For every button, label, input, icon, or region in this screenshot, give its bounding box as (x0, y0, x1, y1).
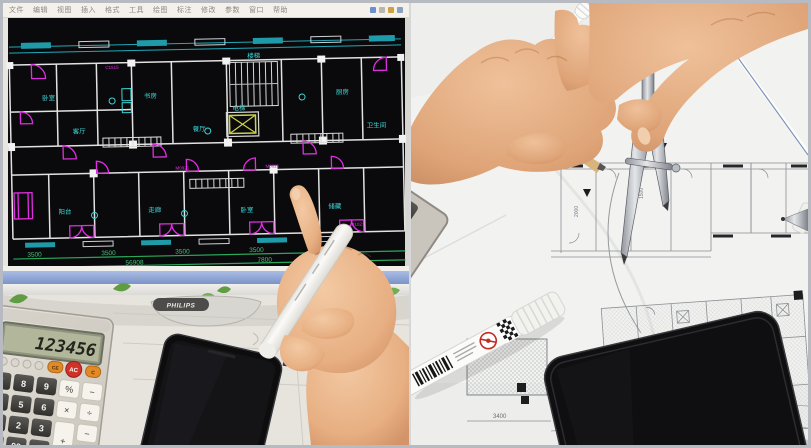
compass-adjust-knob[interactable] (672, 164, 680, 172)
fingernail (292, 188, 301, 200)
menu-item[interactable]: 帮助 (273, 5, 288, 15)
tool-icon[interactable] (379, 7, 385, 13)
menu-item[interactable]: 视图 (57, 5, 72, 15)
dim-label: 3500 (175, 248, 190, 255)
room-label: 书房 (144, 91, 157, 100)
menu-item[interactable]: 工具 (129, 5, 144, 15)
tool-icon[interactable] (370, 7, 376, 13)
room-label: 卧室 (240, 205, 254, 214)
room-label: 储藏 (328, 201, 342, 210)
menu-item[interactable]: 参数 (225, 5, 240, 15)
room-label: 餐厅 (193, 124, 207, 133)
menu-item[interactable]: 窗口 (249, 5, 264, 15)
room-label: 走廊 (148, 205, 162, 214)
room-label: 阳台 (58, 207, 71, 216)
cad-toolbar: 文件 编辑 视图 插入 格式 工具 绘图 标注 修改 参数 窗口 帮助 (3, 3, 409, 18)
door-code: M1021 (351, 222, 365, 227)
room-label: 电梯 (232, 103, 246, 112)
menu-item[interactable]: 绘图 (153, 5, 168, 15)
menu-item[interactable]: 标注 (177, 5, 192, 15)
svg-text:+: + (60, 436, 66, 445)
room-label: 卫生间 (367, 120, 387, 129)
tool-icon[interactable] (397, 7, 403, 13)
svg-text:00: 00 (10, 441, 21, 445)
dim-label: 3500 (249, 247, 264, 254)
right-photo-canvas: 2000 1500 3400 (411, 3, 808, 445)
left-photo-cad-monitor: 文件 编辑 视图 插入 格式 工具 绘图 标注 修改 参数 窗口 帮助 (3, 3, 409, 445)
door-code: C1515 (105, 65, 119, 70)
dim-span-label: 7800 (257, 257, 272, 264)
left-photo-canvas: 卧室 客厅 书房 餐厅 楼梯 厨房 卫生间 阳台 走廊 卧室 储藏 电梯 M09… (3, 3, 409, 445)
dim-label: 3500 (27, 251, 42, 258)
tool-icon[interactable] (388, 7, 394, 13)
door-code: M0821 (265, 163, 279, 168)
room-label: 楼梯 (247, 51, 261, 60)
room-label: 卧室 (42, 93, 56, 102)
right-photo-blueprint: 2000 1500 3400 (411, 3, 808, 445)
toolbar-icons (370, 7, 403, 13)
menu-item[interactable]: 编辑 (33, 5, 48, 15)
room-label: 厨房 (336, 87, 349, 96)
dim-total-label: 56908 (125, 259, 144, 266)
dim-label: 3400 (493, 414, 507, 420)
menu-item[interactable]: 文件 (9, 5, 24, 15)
menu-item[interactable]: 修改 (201, 5, 216, 15)
menu-item[interactable]: 插入 (81, 5, 96, 15)
door-code: M0921 (175, 165, 189, 170)
svg-text:%: % (65, 384, 74, 395)
menu-item[interactable]: 格式 (105, 5, 120, 15)
calculator[interactable]: 123456 CE AC C 7 (3, 305, 114, 445)
photo-collage: 文件 编辑 视图 插入 格式 工具 绘图 标注 修改 参数 窗口 帮助 (0, 0, 811, 448)
dim-label: 3500 (101, 250, 116, 257)
dim-vertical: 2000 (574, 206, 580, 217)
room-label: 客厅 (73, 127, 87, 136)
monitor-brand-logo: PHILIPS (167, 303, 196, 310)
ac-key-label: AC (69, 367, 79, 374)
svg-text:.: . (37, 444, 41, 445)
